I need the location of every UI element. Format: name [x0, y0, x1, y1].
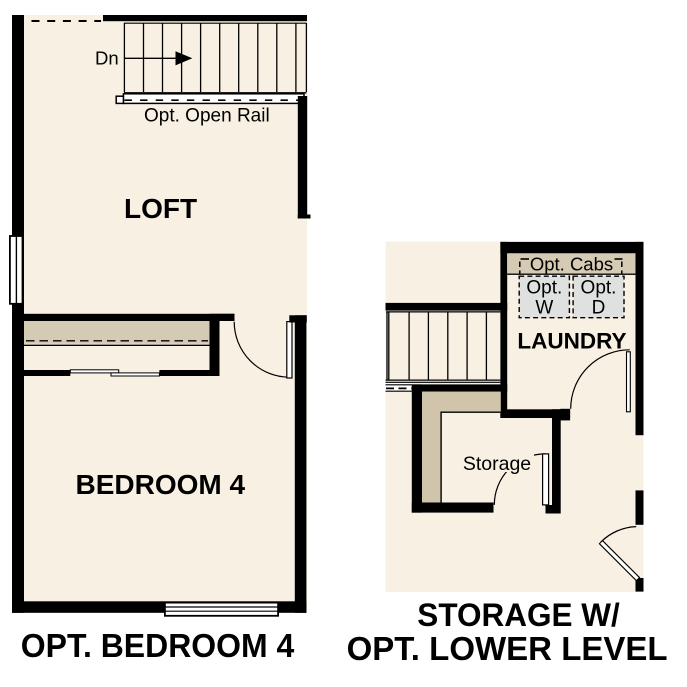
svg-text:Storage: Storage [463, 453, 531, 475]
svg-text:LAUNDRY: LAUNDRY [517, 328, 626, 353]
svg-text:Dn: Dn [95, 48, 119, 69]
svg-text:Opt.: Opt. [581, 278, 617, 299]
svg-text:D: D [592, 298, 606, 319]
svg-text:Opt.: Opt. [526, 278, 562, 299]
svg-text:Opt. Cabs: Opt. Cabs [530, 254, 613, 275]
svg-text:LOFT: LOFT [124, 193, 197, 224]
svg-text:W: W [535, 298, 553, 319]
svg-text:OPT. BEDROOM 4: OPT. BEDROOM 4 [21, 628, 295, 665]
svg-text:Opt. Open Rail: Opt. Open Rail [144, 106, 270, 127]
svg-text:STORAGE W/: STORAGE W/ [417, 597, 620, 633]
svg-text:BEDROOM 4: BEDROOM 4 [76, 469, 246, 500]
svg-text:OPT. LOWER LEVEL: OPT. LOWER LEVEL [347, 630, 668, 667]
